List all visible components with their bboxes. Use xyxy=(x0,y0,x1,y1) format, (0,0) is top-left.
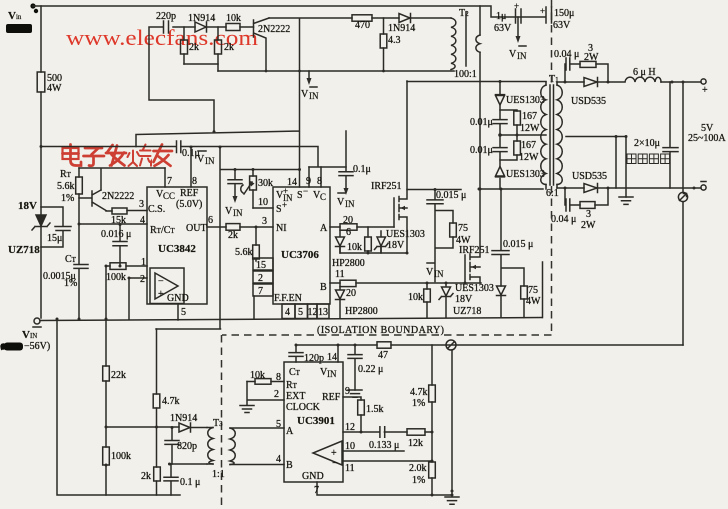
svg-text:HP2800: HP2800 xyxy=(345,306,378,317)
svg-text:A: A xyxy=(286,426,294,437)
svg-text:0.1 μ: 0.1 μ xyxy=(180,477,200,488)
svg-text:18V: 18V xyxy=(455,294,473,305)
svg-text:6: 6 xyxy=(208,215,213,226)
svg-text:15: 15 xyxy=(256,260,266,271)
svg-text:5.6k: 5.6k xyxy=(235,247,253,258)
svg-text:T3: T3 xyxy=(213,418,223,429)
svg-text:2W: 2W xyxy=(581,220,596,231)
svg-text:CT: CT xyxy=(65,254,77,265)
svg-text:V: V xyxy=(225,206,233,217)
svg-text:4.3: 4.3 xyxy=(388,35,401,46)
svg-text:USD535: USD535 xyxy=(571,96,606,107)
svg-text:UC3706: UC3706 xyxy=(281,249,319,261)
svg-text:9: 9 xyxy=(345,386,350,397)
svg-text:UES1303: UES1303 xyxy=(386,229,425,240)
svg-text:REF: REF xyxy=(180,188,199,199)
svg-text:10k: 10k xyxy=(250,370,265,381)
svg-text:C: C xyxy=(320,192,326,202)
svg-text:5: 5 xyxy=(298,307,303,318)
svg-text:RT/CT: RT/CT xyxy=(150,225,175,236)
svg-text:1N914: 1N914 xyxy=(388,23,415,34)
svg-text:0.01μ: 0.01μ xyxy=(470,145,493,156)
svg-text:10k: 10k xyxy=(347,242,362,253)
svg-text:12W: 12W xyxy=(519,152,539,163)
svg-text:1%: 1% xyxy=(412,398,425,409)
svg-text:2k: 2k xyxy=(224,42,234,53)
svg-text:+: + xyxy=(514,1,519,11)
svg-text:IN: IN xyxy=(345,199,355,209)
svg-text:A: A xyxy=(320,223,328,234)
svg-text:2W: 2W xyxy=(584,52,599,63)
svg-text:−: − xyxy=(303,186,308,196)
svg-text:IN: IN xyxy=(309,91,319,101)
svg-text:RT: RT xyxy=(286,380,298,391)
svg-text:S: S xyxy=(276,204,282,215)
svg-text:4: 4 xyxy=(285,307,290,318)
svg-text:0.04 μ: 0.04 μ xyxy=(554,49,579,60)
svg-text:V: V xyxy=(337,197,345,208)
svg-text:18V: 18V xyxy=(387,240,405,251)
svg-text:5.6k: 5.6k xyxy=(57,181,75,192)
svg-text:1%: 1% xyxy=(61,193,74,204)
svg-text:T2: T2 xyxy=(459,8,469,19)
svg-text:11: 11 xyxy=(335,269,345,280)
svg-text:7: 7 xyxy=(167,176,172,187)
svg-text:9: 9 xyxy=(306,176,311,187)
svg-text:CT: CT xyxy=(289,367,301,378)
svg-text:+: + xyxy=(158,289,164,300)
svg-text:(ISOLATION BOUNDARY): (ISOLATION BOUNDARY) xyxy=(317,325,445,336)
svg-text:63V: 63V xyxy=(553,20,571,31)
svg-text:63V: 63V xyxy=(494,23,512,34)
svg-text:75: 75 xyxy=(528,285,538,296)
svg-text:10k: 10k xyxy=(408,292,423,303)
svg-text:2: 2 xyxy=(274,389,279,400)
svg-text:1%: 1% xyxy=(412,475,425,486)
svg-text:100k: 100k xyxy=(106,272,126,283)
svg-text:47: 47 xyxy=(378,350,388,361)
svg-text:0.016 μ: 0.016 μ xyxy=(101,229,131,240)
svg-text:4.7k: 4.7k xyxy=(162,396,180,407)
svg-text:3: 3 xyxy=(262,216,267,227)
svg-text:IN: IN xyxy=(233,208,243,218)
svg-text:F.F.EN: F.F.EN xyxy=(274,293,302,304)
svg-text:B: B xyxy=(320,282,327,293)
svg-text:IN: IN xyxy=(434,269,444,279)
svg-text:4W: 4W xyxy=(526,296,541,307)
svg-text:4W: 4W xyxy=(47,83,62,94)
svg-text:220p: 220p xyxy=(156,11,176,22)
svg-text:EXT: EXT xyxy=(286,391,305,402)
svg-text:10: 10 xyxy=(258,197,268,208)
svg-text:UES1303: UES1303 xyxy=(455,283,494,294)
svg-text:2: 2 xyxy=(140,274,145,285)
svg-text:1μ: 1μ xyxy=(496,11,506,22)
svg-text:0.1μ: 0.1μ xyxy=(353,164,371,175)
svg-text:20: 20 xyxy=(346,288,356,299)
svg-text:8: 8 xyxy=(317,176,322,187)
svg-text:6 μ H: 6 μ H xyxy=(633,67,656,78)
svg-text:+: + xyxy=(702,85,708,96)
svg-text:NI: NI xyxy=(276,223,287,234)
svg-text:5: 5 xyxy=(181,307,186,318)
svg-text:GND: GND xyxy=(302,471,324,482)
svg-text:C.S.: C.S. xyxy=(148,204,165,215)
svg-text:15μ: 15μ xyxy=(47,233,62,244)
svg-text:0.22 μ: 0.22 μ xyxy=(358,364,383,375)
svg-text:2: 2 xyxy=(258,273,263,284)
svg-text:UZ718: UZ718 xyxy=(8,244,40,256)
svg-text:UC3842: UC3842 xyxy=(158,243,196,255)
svg-text:167: 167 xyxy=(521,140,536,151)
svg-text:3: 3 xyxy=(586,209,591,220)
svg-text:6: 6 xyxy=(346,227,351,238)
svg-text:12W: 12W xyxy=(520,123,540,134)
svg-text:2k: 2k xyxy=(141,471,151,482)
svg-text:2N2222: 2N2222 xyxy=(258,24,290,35)
svg-text:+: + xyxy=(540,6,545,16)
svg-text:470: 470 xyxy=(355,20,370,31)
svg-text:7: 7 xyxy=(314,485,319,496)
svg-text:75: 75 xyxy=(458,223,468,234)
svg-text:20: 20 xyxy=(343,215,353,226)
svg-text:0.015 μ: 0.015 μ xyxy=(436,190,466,201)
svg-text:6:1: 6:1 xyxy=(546,188,559,199)
svg-text:1:1: 1:1 xyxy=(212,469,225,480)
svg-text:IRF251: IRF251 xyxy=(371,181,402,192)
svg-text:1N914: 1N914 xyxy=(188,13,215,24)
svg-text:167: 167 xyxy=(522,111,537,122)
svg-text:REF: REF xyxy=(322,392,341,403)
svg-text:12k: 12k xyxy=(408,438,423,449)
svg-text:12: 12 xyxy=(345,422,355,433)
svg-text:UC3901: UC3901 xyxy=(297,415,335,427)
svg-text:IRF251: IRF251 xyxy=(459,245,490,256)
svg-text:B: B xyxy=(286,460,293,471)
svg-text:IN: IN xyxy=(517,51,527,61)
svg-text:V: V xyxy=(197,154,205,165)
svg-text:8: 8 xyxy=(192,176,197,187)
svg-text:12: 12 xyxy=(308,307,318,318)
svg-text:GND: GND xyxy=(167,293,189,304)
svg-text:0.015 μ: 0.015 μ xyxy=(503,239,533,250)
svg-text:0.04 μ: 0.04 μ xyxy=(551,214,576,225)
svg-text:4: 4 xyxy=(140,215,145,226)
svg-text:UES1303: UES1303 xyxy=(506,95,545,106)
svg-text:22k: 22k xyxy=(111,370,126,381)
svg-text:100:1: 100:1 xyxy=(454,69,477,80)
svg-text:(5.0V): (5.0V) xyxy=(176,199,202,210)
svg-text:2k: 2k xyxy=(189,42,199,53)
svg-text:USD535: USD535 xyxy=(572,171,607,182)
svg-text:−: − xyxy=(332,458,338,469)
svg-text:10k: 10k xyxy=(226,13,241,24)
svg-text:1N914: 1N914 xyxy=(170,413,197,424)
svg-text:100k: 100k xyxy=(111,451,131,462)
svg-text:4: 4 xyxy=(276,454,281,465)
svg-text:1%: 1% xyxy=(64,278,77,289)
svg-text:14: 14 xyxy=(287,177,297,188)
svg-text:18V: 18V xyxy=(18,200,37,212)
svg-text:IN: IN xyxy=(205,156,215,166)
svg-text:13: 13 xyxy=(318,307,328,318)
svg-text:0.01μ: 0.01μ xyxy=(470,117,493,128)
svg-text:4.7k: 4.7k xyxy=(410,387,428,398)
svg-text:V: V xyxy=(426,267,434,278)
svg-text:1: 1 xyxy=(141,257,146,268)
svg-text:11: 11 xyxy=(345,463,355,474)
svg-text:820p: 820p xyxy=(177,441,197,452)
svg-text:2.0k: 2.0k xyxy=(409,463,427,474)
svg-text:0.133 μ: 0.133 μ xyxy=(369,440,399,451)
svg-text:7: 7 xyxy=(258,286,263,297)
svg-text:2×10μ: 2×10μ xyxy=(634,138,660,149)
svg-text:UZ718: UZ718 xyxy=(453,306,481,317)
svg-text:V: V xyxy=(301,89,309,100)
svg-text:+: + xyxy=(282,200,287,210)
svg-text:8: 8 xyxy=(276,372,281,383)
svg-text:CC: CC xyxy=(163,191,175,201)
svg-text:IN: IN xyxy=(327,369,337,379)
svg-text:S: S xyxy=(297,190,303,201)
svg-text:CLOCK: CLOCK xyxy=(286,402,321,413)
svg-text:V: V xyxy=(509,49,517,60)
svg-text:30k: 30k xyxy=(258,178,273,189)
svg-text:1.5k: 1.5k xyxy=(366,404,384,415)
svg-text:−: − xyxy=(158,276,164,287)
svg-text:HP2800: HP2800 xyxy=(332,258,365,269)
svg-text:10: 10 xyxy=(345,441,355,452)
svg-text:2N2222: 2N2222 xyxy=(102,191,134,202)
svg-text:2k: 2k xyxy=(228,230,238,241)
svg-text:UES1303: UES1303 xyxy=(506,169,545,180)
svg-text:RT: RT xyxy=(60,169,72,180)
svg-text:OUT: OUT xyxy=(186,223,207,234)
svg-text:−56V): −56V) xyxy=(24,341,50,352)
svg-text:25~100A: 25~100A xyxy=(688,133,726,144)
svg-text:150μ: 150μ xyxy=(554,8,574,19)
svg-text:3: 3 xyxy=(139,199,144,210)
svg-text:5: 5 xyxy=(276,419,281,430)
